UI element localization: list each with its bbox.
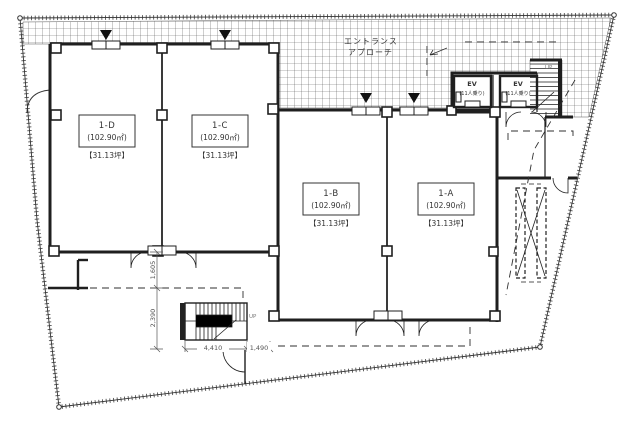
lower-stair-up-label: UP — [249, 314, 257, 320]
unit-1a-name: 1-A — [438, 189, 454, 199]
unit-1b-tsubo: 【31.13坪】 — [309, 219, 353, 228]
unit-1d-area: (102.90㎡) — [87, 133, 127, 142]
elevator-2-label: EV — [513, 80, 522, 88]
unit-label-1c: 1-C (102.90㎡) 【31.13坪】 — [192, 115, 248, 160]
dim-depth-upper: 1,605 — [149, 261, 157, 280]
elevator-bank: EV (11人乗り) EV (11人乗り) — [454, 76, 537, 107]
lift-pit — [516, 184, 546, 282]
boundary-point-bottom-left — [57, 405, 62, 410]
unit-label-1d: 1-D (102.90㎡) 【31.13坪】 — [79, 115, 135, 160]
driveway-curb-arc — [27, 90, 50, 113]
unit-1b-area: (102.90㎡) — [311, 201, 351, 210]
lower-staircase: UP — [180, 303, 257, 340]
floor-plan-drawing: EV (11人乗り) EV (11人乗り) UP UP — [0, 0, 640, 434]
entrance-label-line2: アプローチ — [348, 48, 393, 57]
dim-depth-lower: 2,390 — [149, 309, 157, 328]
annex-walls — [48, 260, 88, 290]
door-swings — [131, 112, 568, 384]
unit-1c-tsubo: 【31.13坪】 — [198, 151, 242, 160]
unit-1a-tsubo: 【31.13坪】 — [424, 219, 468, 228]
floor-plan-canvas: EV (11人乗り) EV (11人乗り) UP UP — [0, 0, 640, 434]
unit-1d-tsubo: 【31.13坪】 — [85, 151, 129, 160]
elevator-2-capacity: (11人乗り) — [505, 90, 530, 97]
unit-1b-name: 1-B — [323, 189, 339, 199]
unit-1c-area: (102.90㎡) — [200, 133, 240, 142]
entrance-label-line1: エントランス — [344, 37, 398, 46]
boundary-point-top-right — [612, 13, 617, 18]
unit-label-1a: 1-A (102.90㎡) 【31.13坪】 — [418, 183, 474, 228]
unit-1c-name: 1-C — [212, 121, 228, 131]
boundary-point-bottom-right — [538, 345, 543, 350]
upper-stair-up-label: UP — [545, 65, 553, 71]
unit-1d-name: 1-D — [99, 121, 116, 131]
dim-width-side: 1,490 — [250, 344, 269, 352]
dim-width-main: 4,410 — [204, 344, 223, 352]
elevator-1-capacity: (11人乗り) — [459, 90, 484, 97]
unit-1a-area: (102.90㎡) — [426, 201, 466, 210]
elevator-1-label: EV — [467, 80, 476, 88]
unit-label-1b: 1-B (102.90㎡) 【31.13坪】 — [303, 183, 359, 228]
boundary-point-top-left — [18, 16, 23, 21]
